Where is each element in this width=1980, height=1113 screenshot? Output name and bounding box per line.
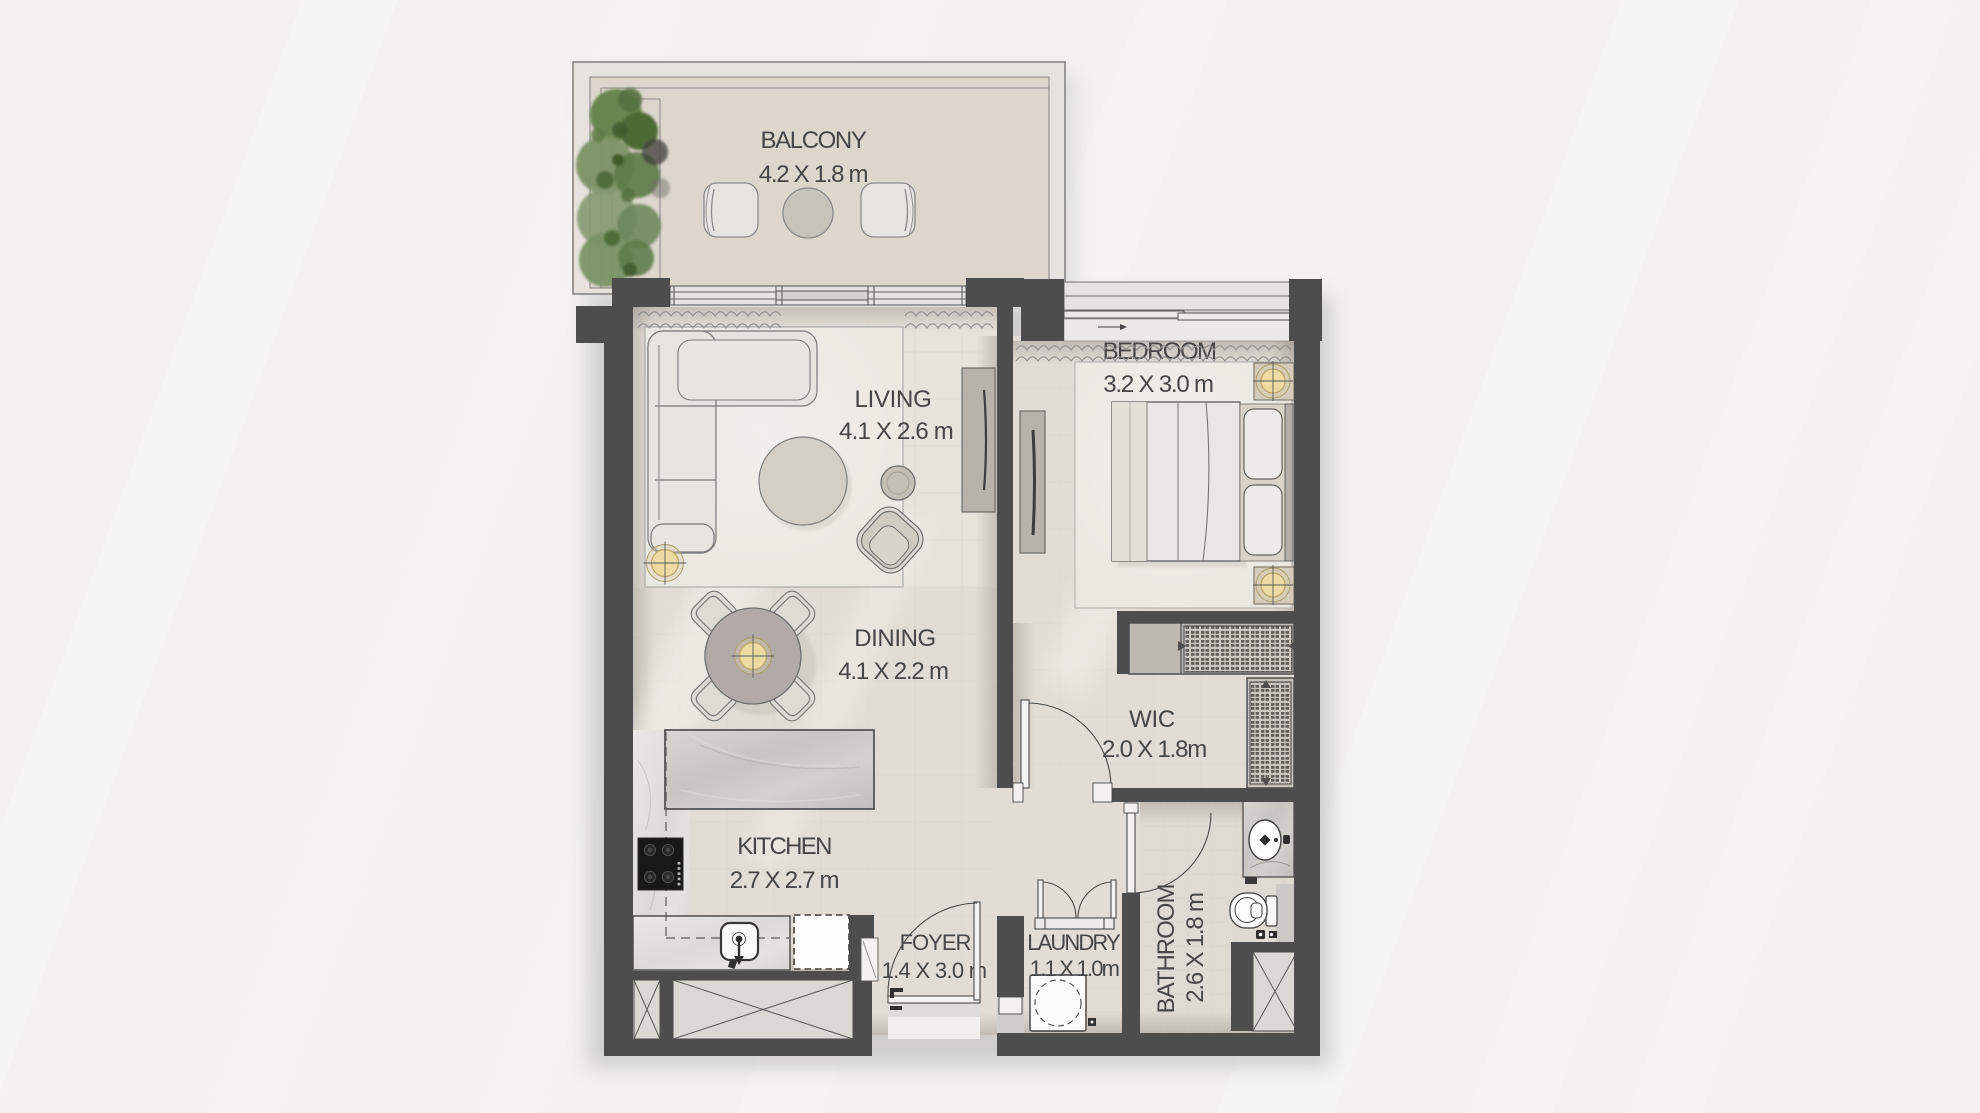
svg-text:4.1 X 2.2 m: 4.1 X 2.2 m [838,658,948,685]
svg-text:DINING: DINING [854,625,936,652]
svg-text:1.4 X 3.0 m: 1.4 X 3.0 m [882,958,987,983]
svg-text:4.2 X 1.8 m: 4.2 X 1.8 m [759,161,868,188]
svg-text:2.6 X 1.8 m: 2.6 X 1.8 m [1182,893,1209,1003]
svg-text:LIVING: LIVING [855,386,932,413]
svg-text:4.1 X 2.6 m: 4.1 X 2.6 m [839,418,953,445]
svg-text:2.7 X 2.7 m: 2.7 X 2.7 m [730,867,839,894]
svg-text:LAUNDRY: LAUNDRY [1027,930,1121,955]
svg-text:3.2 X 3.0 m: 3.2 X 3.0 m [1103,371,1213,398]
svg-text:KITCHEN: KITCHEN [737,833,831,860]
svg-text:1.1 X 1.0m: 1.1 X 1.0m [1030,956,1119,981]
svg-text:WIC: WIC [1129,706,1175,733]
svg-text:BATHROOM: BATHROOM [1153,885,1180,1014]
svg-text:BALCONY: BALCONY [761,127,867,154]
svg-text:2.0 X 1.8m: 2.0 X 1.8m [1102,736,1206,763]
